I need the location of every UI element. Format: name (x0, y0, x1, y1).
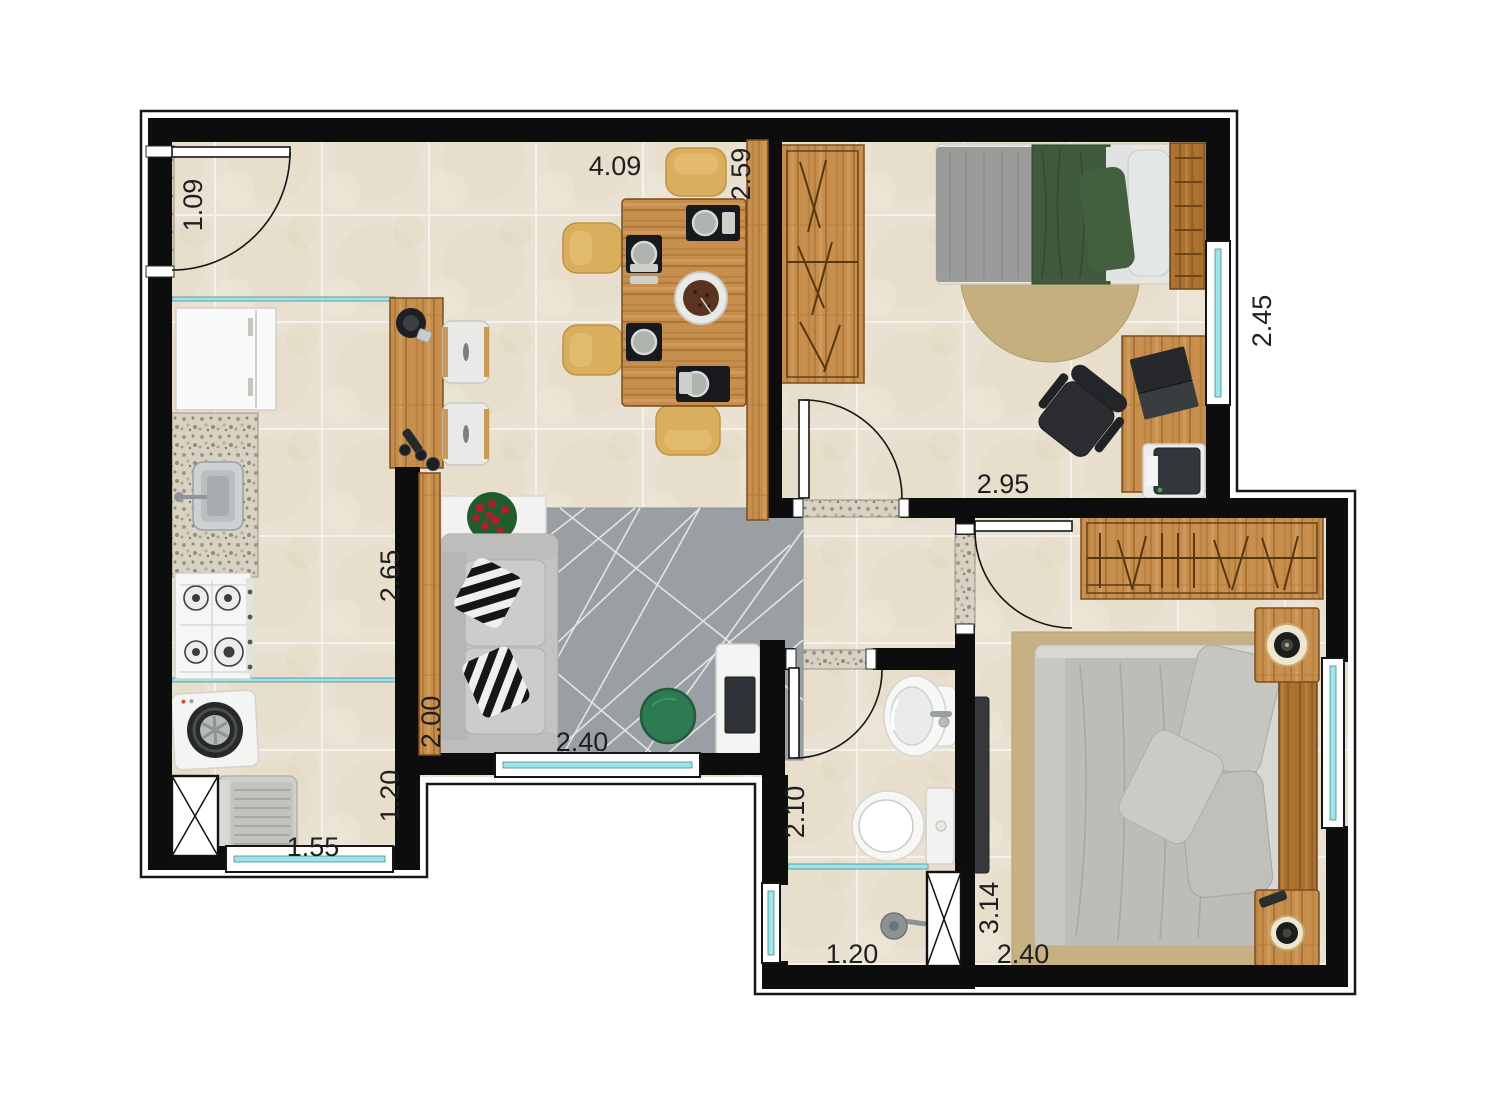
tv-screen (725, 677, 755, 733)
dim-master-width: 2.40 (997, 939, 1050, 969)
gray-blanket (936, 147, 1034, 282)
nightstand-top (1255, 608, 1319, 682)
bed-headboard (1170, 143, 1207, 289)
dim-living-width: 4.09 (589, 151, 642, 181)
toilet (852, 788, 954, 864)
dim-kitchen-depth: 2.65 (375, 550, 405, 603)
tv-rack (716, 644, 760, 756)
dim-bedroom1-width: 2.95 (977, 469, 1030, 499)
bathroom-threshold (795, 650, 873, 669)
cake-plate (675, 272, 727, 324)
sink-faucet (930, 711, 952, 717)
bedroom1-threshold (802, 500, 900, 517)
dim-entry: 1.09 (178, 179, 208, 232)
floor-plan-canvas: 1.09 4.09 2.59 2.95 2.45 2.65 2.00 1.20 … (0, 0, 1500, 1119)
nightstand-bottom (1255, 890, 1319, 966)
flush-button (936, 821, 946, 831)
master-window (1322, 658, 1344, 828)
stove (175, 573, 254, 679)
bathroom-shaft (927, 872, 961, 966)
laundry-tank (217, 776, 297, 856)
dim-living-side: 2.00 (416, 696, 446, 749)
dim-bedroom1-depth: 2.45 (1247, 295, 1277, 348)
master-threshold (955, 533, 975, 627)
bedroom1-wardrobe (781, 145, 864, 383)
printer-stand (1143, 444, 1205, 498)
sofa (441, 534, 558, 758)
kitchen-partition-line (172, 297, 395, 301)
printer (1154, 448, 1200, 494)
master-headboard (1279, 662, 1317, 904)
living-room (441, 492, 803, 760)
bar-stool-2 (443, 403, 489, 465)
bar-stool-1 (443, 321, 489, 383)
dim-laundry-depth: 1.20 (375, 770, 405, 823)
dim-master-depth: 3.14 (974, 882, 1004, 935)
dim-living-window: 2.40 (556, 727, 609, 757)
dim-bathroom-depth: 2.10 (780, 786, 810, 839)
laundry-shaft (172, 776, 218, 856)
wall-tv-panel (973, 697, 989, 873)
dim-dining-depth: 2.59 (726, 148, 756, 201)
dim-laundry-width: 1.55 (287, 832, 340, 862)
refrigerator (176, 308, 276, 410)
floor-plan-svg: 1.09 4.09 2.59 2.95 2.45 2.65 2.00 1.20 … (0, 0, 1500, 1119)
master-wardrobe (1081, 517, 1323, 599)
pouf (641, 689, 695, 743)
single-bed (936, 143, 1207, 289)
dim-bathroom-width: 1.20 (826, 939, 879, 969)
bathroom-window (762, 883, 780, 963)
washing-machine (171, 690, 259, 770)
shower-glass-line (788, 864, 928, 869)
bathroom-sink (884, 676, 956, 756)
bedroom1-window (1206, 241, 1230, 405)
